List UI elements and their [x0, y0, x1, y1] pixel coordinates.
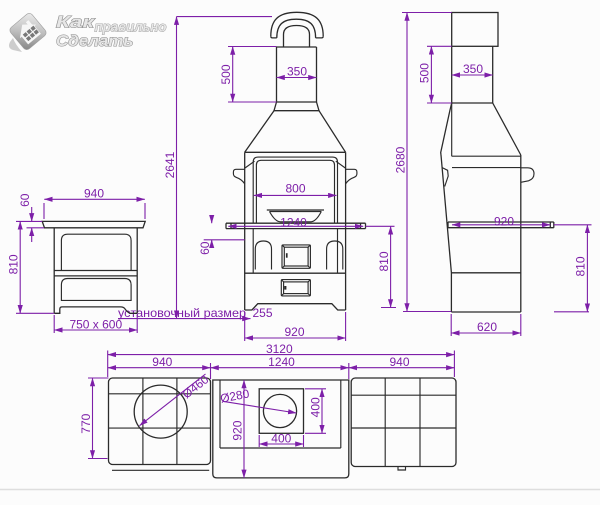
svg-text:940: 940: [84, 187, 104, 201]
svg-text:2641: 2641: [163, 151, 177, 178]
svg-text:Сделать: Сделать: [56, 33, 134, 50]
svg-text:1240: 1240: [280, 216, 307, 230]
svg-text:2680: 2680: [393, 146, 407, 173]
svg-text:920: 920: [230, 420, 244, 440]
svg-text:60: 60: [18, 193, 32, 207]
svg-text:3120: 3120: [266, 342, 293, 356]
svg-text:920: 920: [494, 214, 514, 228]
svg-text:Как: Как: [56, 12, 96, 31]
svg-text:60: 60: [198, 241, 212, 255]
svg-text:350: 350: [287, 65, 307, 79]
svg-text:750 x 600: 750 x 600: [69, 317, 122, 331]
svg-text:500: 500: [219, 64, 233, 84]
svg-text:400: 400: [271, 431, 291, 445]
svg-text:350: 350: [463, 62, 483, 76]
svg-text:400: 400: [308, 397, 322, 417]
svg-text:810: 810: [7, 254, 21, 274]
svg-text:500: 500: [418, 63, 432, 83]
svg-text:770: 770: [79, 413, 93, 433]
svg-text:1240: 1240: [268, 355, 295, 369]
svg-text:940: 940: [152, 355, 172, 369]
svg-text:920: 920: [284, 325, 304, 339]
svg-text:620: 620: [477, 320, 497, 334]
svg-text:810: 810: [574, 256, 588, 276]
svg-text:940: 940: [389, 355, 409, 369]
svg-text:800: 800: [285, 182, 305, 196]
svg-text:255: 255: [253, 306, 273, 320]
svg-text:810: 810: [377, 251, 391, 271]
